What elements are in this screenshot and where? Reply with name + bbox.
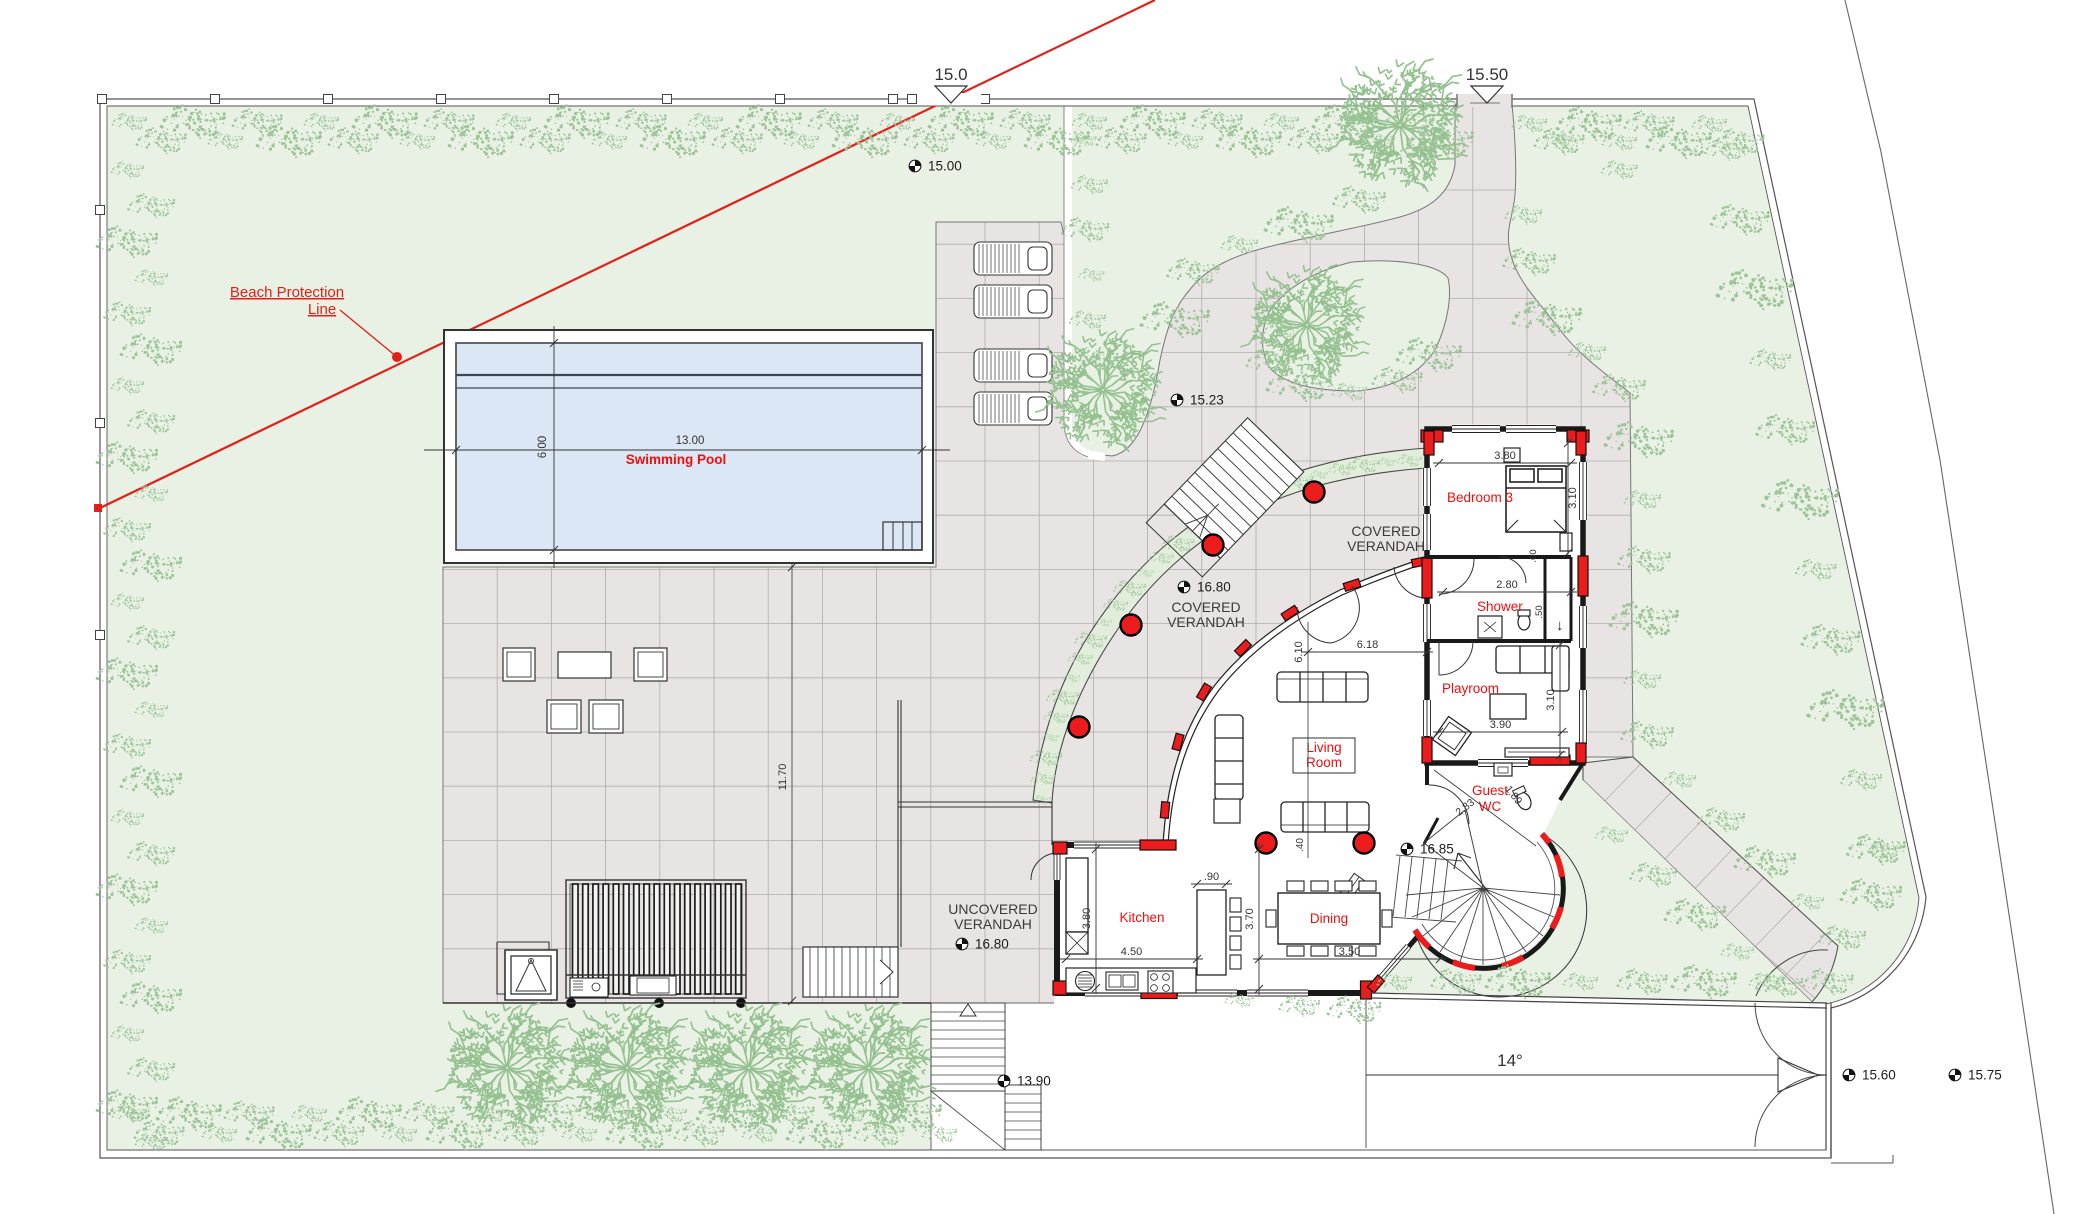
svg-text:COVERED: COVERED [1171,599,1240,615]
svg-text:UNCOVERED: UNCOVERED [948,901,1037,917]
svg-text:VERANDAH: VERANDAH [1167,614,1245,630]
svg-text:.60: .60 [1528,549,1539,562]
svg-text:3.70: 3.70 [1244,908,1256,929]
svg-text:11.70: 11.70 [777,764,789,791]
svg-text:15.00: 15.00 [928,159,962,174]
svg-text:3.10: 3.10 [1545,689,1557,710]
svg-text:3.10: 3.10 [1567,487,1579,508]
svg-text:4.50: 4.50 [1121,946,1142,958]
svg-text:Dining: Dining [1310,911,1348,926]
svg-text:14°: 14° [1497,1051,1523,1070]
svg-text:16.80: 16.80 [1197,580,1231,595]
svg-text:13.00: 13.00 [676,435,705,447]
svg-text:15.0: 15.0 [934,65,967,84]
svg-text:.50: .50 [1534,605,1545,618]
svg-text:6.00: 6.00 [537,436,549,458]
svg-text:13.90: 13.90 [1017,1074,1051,1089]
svg-text:15.50: 15.50 [1466,65,1509,84]
svg-text:16.80: 16.80 [975,937,1009,952]
svg-text:COVERED: COVERED [1351,523,1420,539]
svg-text:16.85: 16.85 [1420,842,1454,857]
svg-text:.40: .40 [1295,838,1306,852]
svg-text:.90: .90 [1204,871,1219,883]
svg-text:VERANDAH: VERANDAH [954,916,1032,932]
svg-text:15.60: 15.60 [1862,1068,1896,1083]
svg-text:Living: Living [1306,740,1341,755]
svg-text:Beach Protection: Beach Protection [230,284,344,301]
svg-text:15.75: 15.75 [1968,1068,2002,1083]
svg-text:2.80: 2.80 [1496,579,1517,591]
svg-text:↓: ↓ [1556,617,1564,634]
svg-text:VERANDAH: VERANDAH [1347,538,1425,554]
svg-text:Room: Room [1306,755,1342,770]
svg-text:3.50: 3.50 [1339,946,1360,958]
svg-text:Shower: Shower [1477,599,1523,614]
svg-text:Swimming Pool: Swimming Pool [626,452,727,467]
svg-text:Kitchen: Kitchen [1119,910,1164,925]
svg-text:3.90: 3.90 [1490,719,1511,731]
svg-text:Bedroom 3: Bedroom 3 [1447,490,1513,505]
svg-text:3.80: 3.80 [1494,450,1515,462]
svg-text:3.80: 3.80 [1081,908,1093,929]
svg-text:6.18: 6.18 [1357,639,1378,651]
svg-text:15.23: 15.23 [1190,393,1224,408]
svg-text:Line: Line [308,301,336,318]
svg-text:Playroom: Playroom [1442,681,1499,696]
